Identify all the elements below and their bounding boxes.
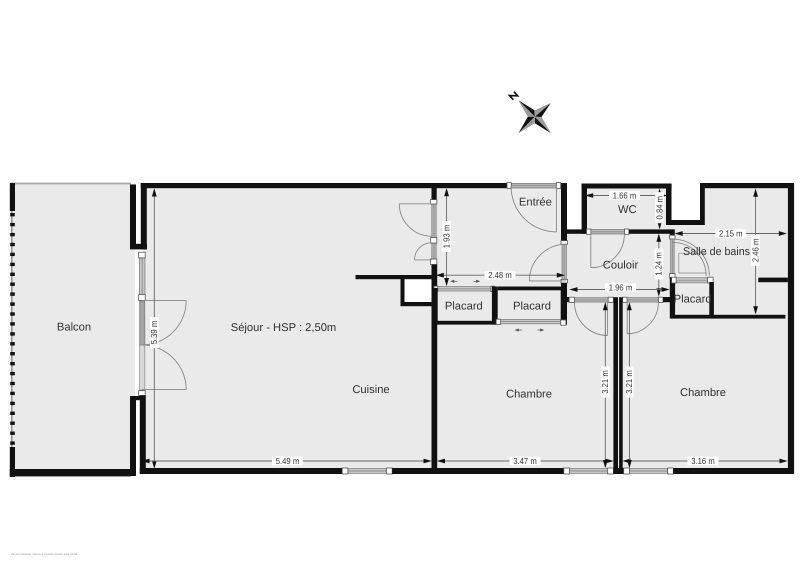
svg-text:1.96 m: 1.96 m <box>609 282 633 292</box>
svg-text:Placard: Placard <box>445 301 483 313</box>
svg-text:0.84 m: 0.84 m <box>654 196 664 220</box>
svg-text:2.46 m: 2.46 m <box>750 239 760 263</box>
svg-text:Séjour - HSP : 2,50m: Séjour - HSP : 2,50m <box>231 322 337 334</box>
svg-text:3.21 m: 3.21 m <box>624 370 634 394</box>
svg-text:Placard: Placard <box>674 294 712 306</box>
svg-text:3.16 m: 3.16 m <box>691 456 715 466</box>
svg-text:5.49 m: 5.49 m <box>276 456 300 466</box>
svg-text:Couloir: Couloir <box>603 260 639 272</box>
svg-text:5.39 m: 5.39 m <box>149 321 159 345</box>
svg-text:2.15 m: 2.15 m <box>719 229 743 239</box>
svg-text:Placard: Placard <box>513 301 551 313</box>
svg-text:WC: WC <box>618 204 637 216</box>
svg-text:Cuisine: Cuisine <box>352 384 389 396</box>
svg-text:Chambre: Chambre <box>506 389 552 401</box>
svg-text:1.24 m: 1.24 m <box>654 252 664 276</box>
svg-text:Salle de bains: Salle de bains <box>683 246 750 258</box>
svg-text:Entrée: Entrée <box>519 196 552 208</box>
svg-text:3.21 m: 3.21 m <box>600 370 610 394</box>
svg-text:Chambre: Chambre <box>680 387 726 399</box>
svg-text:Balcon: Balcon <box>57 322 91 334</box>
svg-text:1.66 m: 1.66 m <box>613 191 637 201</box>
svg-text:1.93 m: 1.93 m <box>441 225 451 249</box>
svg-text:2.48 m: 2.48 m <box>488 270 512 280</box>
svg-text:3.47 m: 3.47 m <box>513 456 537 466</box>
svg-text:Plan non contractuel - Mesures: Plan non contractuel - Mesures et superf… <box>11 553 77 556</box>
